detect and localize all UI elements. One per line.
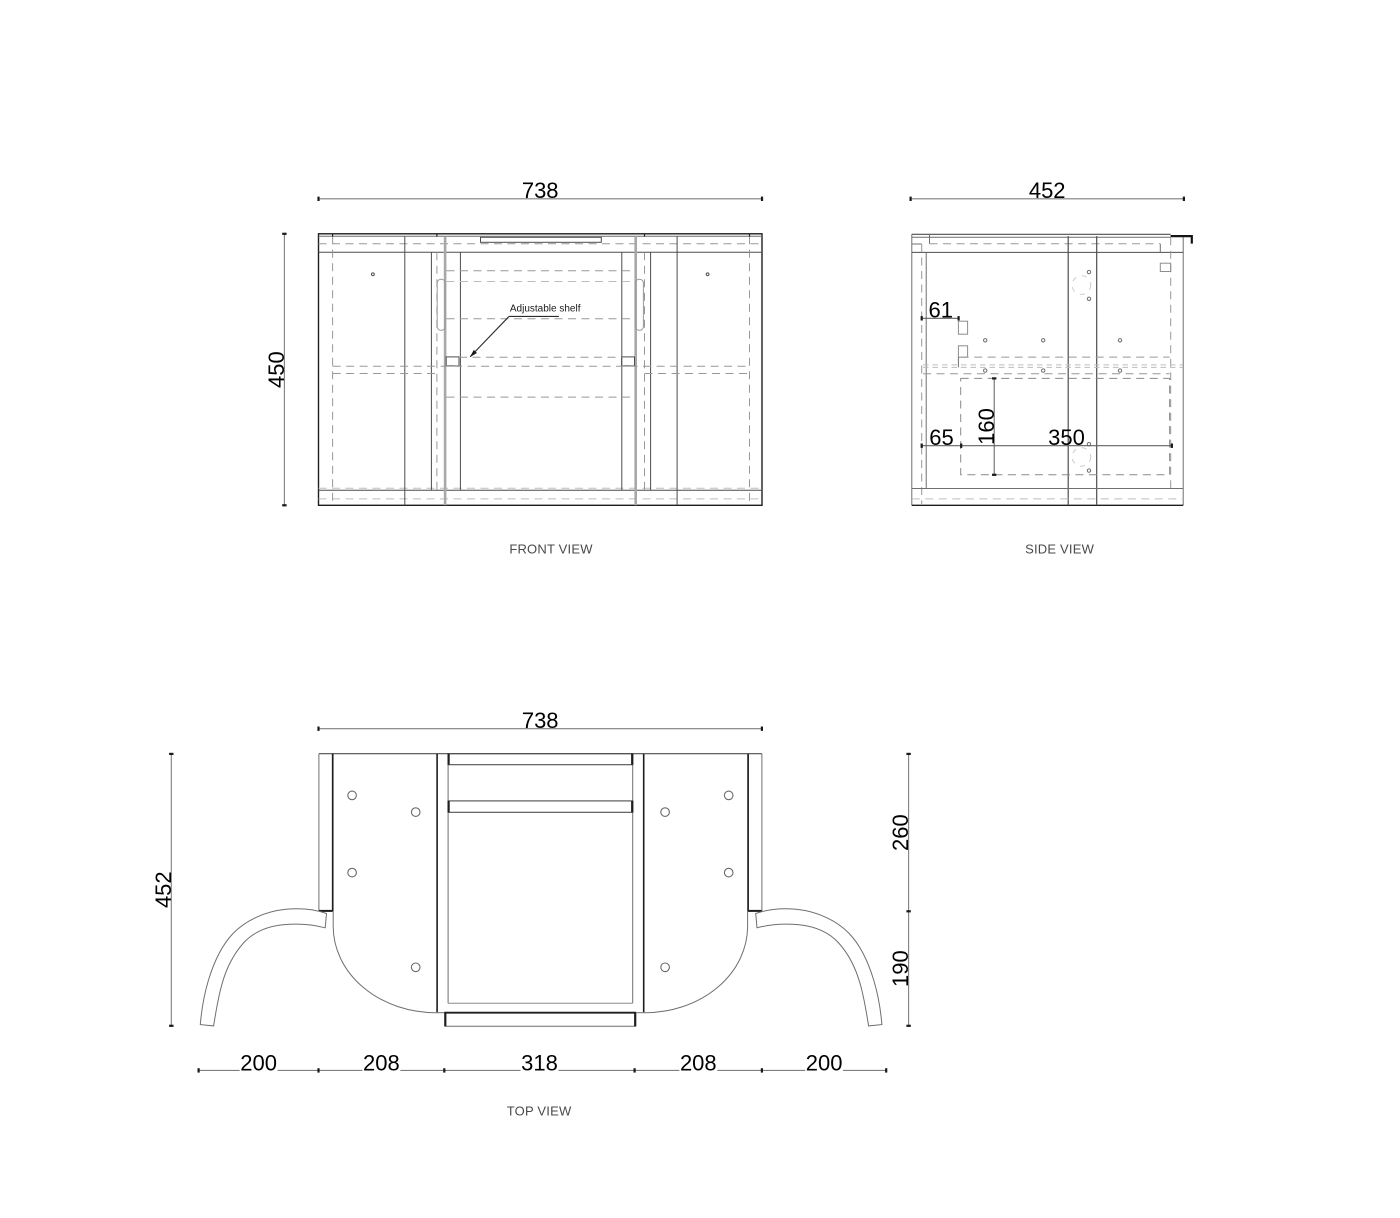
svg-text:TOP VIEW: TOP VIEW <box>507 1103 572 1118</box>
svg-text:FRONT VIEW: FRONT VIEW <box>509 541 593 556</box>
svg-text:Adjustable shelf: Adjustable shelf <box>510 304 581 315</box>
svg-text:200: 200 <box>240 1051 277 1076</box>
svg-text:450: 450 <box>264 351 289 388</box>
svg-text:738: 738 <box>522 178 559 203</box>
svg-text:208: 208 <box>363 1051 400 1076</box>
svg-text:61: 61 <box>929 298 953 323</box>
svg-text:160: 160 <box>974 408 999 445</box>
svg-text:200: 200 <box>806 1051 843 1076</box>
svg-text:318: 318 <box>521 1051 558 1076</box>
svg-text:260: 260 <box>888 814 913 851</box>
svg-text:452: 452 <box>151 871 176 908</box>
svg-text:350: 350 <box>1048 425 1085 450</box>
svg-text:452: 452 <box>1029 178 1066 203</box>
svg-text:208: 208 <box>680 1051 717 1076</box>
svg-text:190: 190 <box>888 950 913 987</box>
svg-text:738: 738 <box>522 708 559 733</box>
svg-text:SIDE VIEW: SIDE VIEW <box>1025 541 1095 556</box>
svg-text:65: 65 <box>929 425 953 450</box>
